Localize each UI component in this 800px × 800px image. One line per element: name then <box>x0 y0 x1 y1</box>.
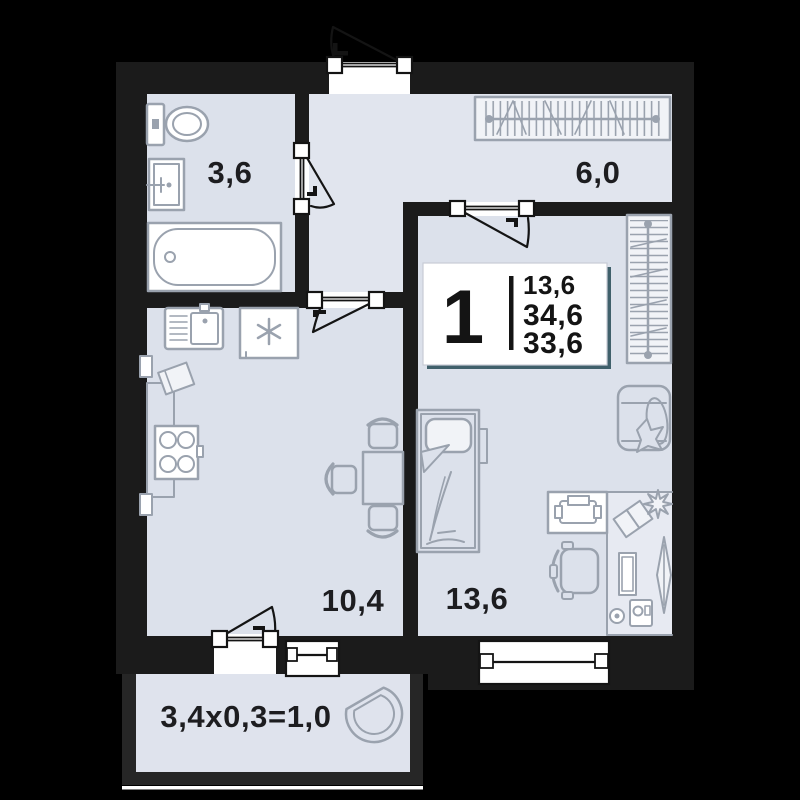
door-handle-2 <box>313 186 317 194</box>
wall-stub-icon <box>140 494 152 515</box>
hallway-wardrobe-icon <box>475 97 670 140</box>
kitchen-sink-icon <box>165 304 223 349</box>
wall-stub-icon <box>140 356 152 377</box>
dining-table-icon <box>363 452 403 504</box>
door-jamb <box>519 201 534 216</box>
entrance-door <box>327 27 412 94</box>
room-count: 1 <box>442 275 484 360</box>
floorplan-canvas: 3,6 6,0 10,4 13,6 3,4х0,3=1,0 1 13,6 34,… <box>0 0 800 800</box>
speaker-box-icon <box>630 600 652 626</box>
bathtub-icon <box>148 223 281 291</box>
cabinet-icon <box>619 553 636 595</box>
facade-line <box>122 786 423 790</box>
door-handle-2 <box>514 218 518 227</box>
door-jamb <box>212 631 227 647</box>
door-jamb <box>294 199 309 214</box>
door-jamb <box>263 631 278 647</box>
area-value-3: 33,6 <box>523 327 583 360</box>
hallway-area-label: 6,0 <box>576 155 621 190</box>
area-value-1: 13,6 <box>523 270 576 300</box>
window-jamb <box>480 654 493 668</box>
window-jamb <box>595 654 608 668</box>
card-divider <box>509 276 514 350</box>
balcony-wall-bottom <box>122 772 423 785</box>
hallway-corridor-floor <box>307 202 403 292</box>
plant-star-icon <box>644 490 672 518</box>
unit-info-card: 1 13,6 34,6 33,6 <box>423 263 611 369</box>
bathroom-area-label: 3,6 <box>208 155 253 190</box>
wall-left <box>116 62 147 636</box>
door-jamb <box>397 57 412 73</box>
bedroom-window <box>479 641 609 684</box>
door-handle-2 <box>333 43 338 52</box>
bedroom-area-label: 13,6 <box>446 581 509 616</box>
dining-chair-icon <box>368 419 397 448</box>
desk-icon <box>548 492 607 533</box>
stove-icon <box>155 426 203 479</box>
office-chair-icon <box>550 542 598 599</box>
door-handle <box>253 626 265 630</box>
door-handle-2 <box>313 310 317 317</box>
door-jamb <box>450 201 465 216</box>
washbasin-icon <box>147 159 184 210</box>
toilet-icon <box>147 104 208 145</box>
door-jamb <box>327 57 342 73</box>
window-jamb <box>327 648 337 661</box>
kitchen-window <box>286 641 339 676</box>
kitchen-living-area-label: 10,4 <box>322 583 385 618</box>
door-jamb <box>369 292 384 308</box>
door-jamb <box>294 143 309 158</box>
bedroom-wardrobe-icon <box>627 215 671 363</box>
bed-icon <box>417 410 479 552</box>
fridge-icon <box>240 308 298 358</box>
balcony-area-label: 3,4х0,3=1,0 <box>160 699 331 734</box>
wall-bathroom-bottom <box>116 292 309 308</box>
knob-icon <box>610 609 624 623</box>
door-jamb <box>307 292 322 308</box>
window-jamb <box>287 648 297 661</box>
wall-right <box>672 62 694 690</box>
apartment-floorplan: 3,6 6,0 10,4 13,6 3,4х0,3=1,0 1 13,6 34,… <box>0 0 800 800</box>
